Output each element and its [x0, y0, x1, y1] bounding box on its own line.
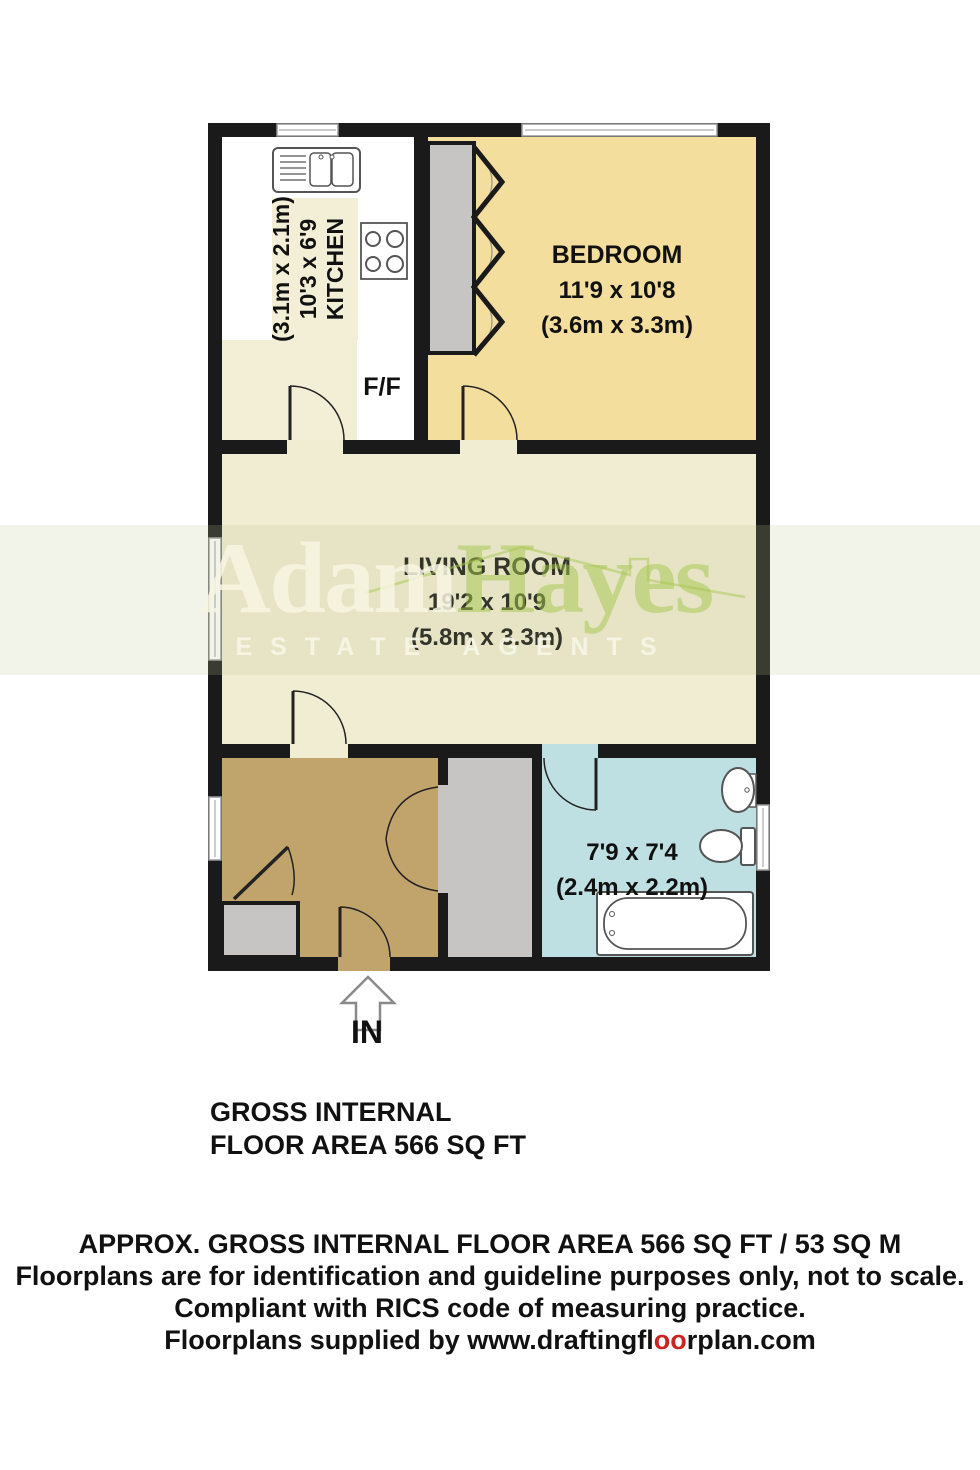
kitchen-window: [277, 124, 338, 136]
bathroom-window: [757, 805, 769, 870]
footer-supplier-suffix: rplan.com: [687, 1325, 816, 1355]
gross-area-line1: GROSS INTERNAL: [210, 1096, 526, 1129]
footer-supplier-prefix: Floorplans supplied by www.draftingfl: [164, 1325, 654, 1355]
kitchen-dims-ft: 10'3 x 6'9: [295, 219, 321, 319]
footer-supplier-highlight: oo: [654, 1325, 687, 1355]
hall-cupboard: [222, 903, 298, 957]
bathroom-dims-m: (2.4m x 2.2m): [556, 874, 708, 901]
footer-guideline-line: Floorplans are for identification and gu…: [0, 1260, 980, 1292]
kitchen-sink-icon: [273, 148, 360, 192]
bedroom-dims-m: (3.6m x 3.3m): [541, 312, 693, 339]
footer-rics-line: Compliant with RICS code of measuring pr…: [0, 1292, 980, 1324]
living-room-window: [209, 538, 221, 660]
storage-closet: [448, 758, 532, 957]
sink-icon: [722, 768, 756, 812]
footer-supplier-line: Floorplans supplied by www.draftingfloor…: [0, 1324, 980, 1356]
floorplan: (3.1m x 2.1m) 10'3 x 6'9 KITCHEN F/F BED…: [208, 123, 770, 971]
kitchen-label: KITCHEN: [322, 218, 348, 320]
bathroom-dims-ft: 7'9 x 7'4: [586, 839, 678, 866]
gross-area-note: GROSS INTERNAL FLOOR AREA 566 SQ FT: [210, 1096, 526, 1162]
gross-area-line2: FLOOR AREA 566 SQ FT: [210, 1129, 526, 1162]
bedroom-dims-ft: 11'9 x 10'8: [559, 277, 676, 304]
living-room-dims-ft: 19'2 x 10'9: [428, 589, 546, 616]
bedroom-window: [522, 124, 717, 136]
hallway-window: [209, 797, 221, 860]
toilet-icon: [700, 828, 755, 865]
footer-disclaimer: APPROX. GROSS INTERNAL FLOOR AREA 566 SQ…: [0, 1228, 980, 1356]
living-room-label: LIVING ROOM: [403, 553, 571, 581]
bathtub-icon: [597, 892, 753, 955]
fridge-freezer-label: F/F: [363, 373, 401, 401]
entrance-label: IN: [332, 1014, 402, 1051]
living-room-dims-m: (5.8m x 3.3m): [411, 624, 563, 651]
hob-icon: [361, 223, 407, 279]
floorplan-page: (3.1m x 2.1m) 10'3 x 6'9 KITCHEN F/F BED…: [0, 0, 980, 1470]
footer-area-line: APPROX. GROSS INTERNAL FLOOR AREA 566 SQ…: [0, 1228, 980, 1260]
bedroom-label: BEDROOM: [552, 241, 683, 269]
kitchen-dims-m: (3.1m x 2.1m): [268, 196, 294, 342]
